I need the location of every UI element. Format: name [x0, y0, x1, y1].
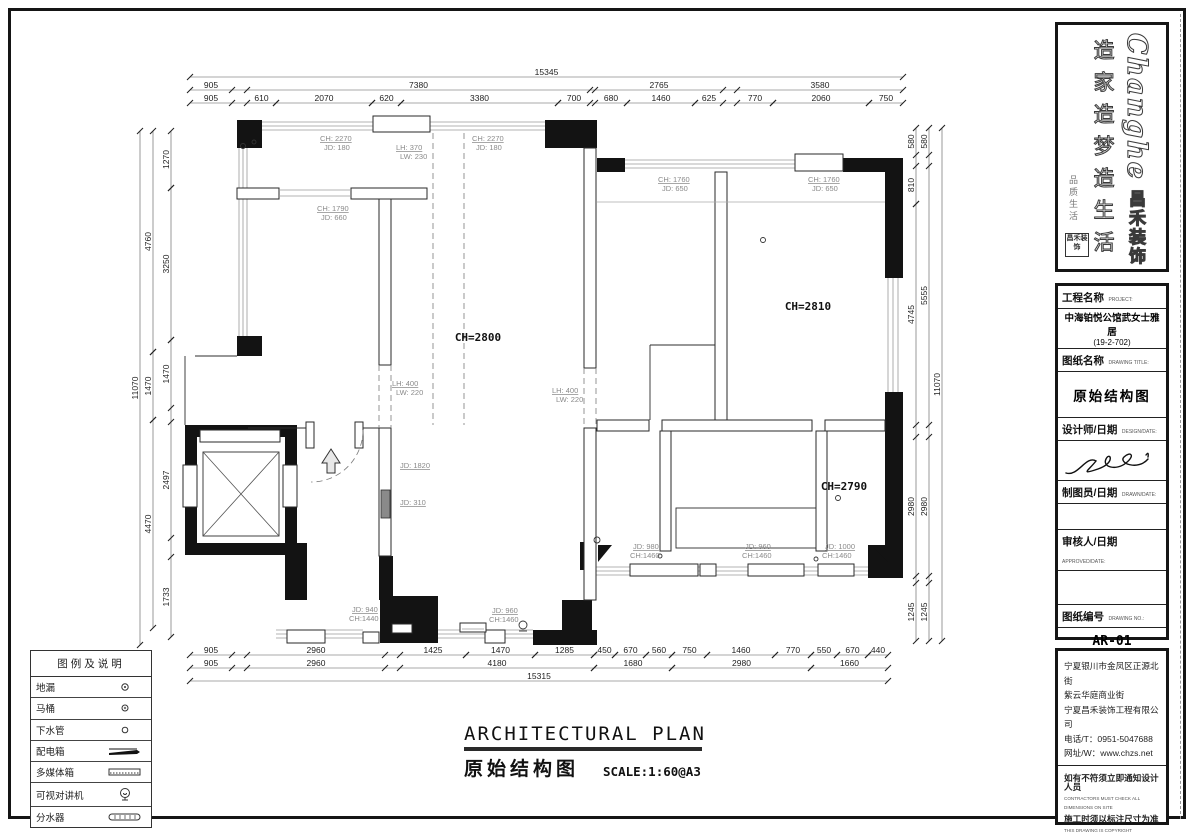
dim-top-total: 15345	[187, 67, 906, 80]
legend-row-toilet: 马桶	[31, 698, 151, 719]
svg-text:580: 580	[906, 134, 916, 148]
svg-text:770: 770	[786, 645, 800, 655]
intercom-icon	[519, 621, 527, 629]
note-1-en: CONTRACTORS MUST CHECK ALL DIMENSIONS ON…	[1064, 794, 1160, 812]
svg-text:610: 610	[254, 93, 268, 103]
svg-text:2980: 2980	[906, 497, 916, 516]
dim-bottom-groups: 90529604180168029801660	[187, 658, 891, 671]
svg-text:15315: 15315	[527, 671, 551, 681]
drafter-label: 制图员/日期	[1062, 487, 1117, 499]
svg-text:905: 905	[204, 645, 218, 655]
svg-text:JD: 980CH:1460: JD: 980CH:1460	[630, 542, 660, 560]
svg-text:2765: 2765	[650, 80, 669, 90]
svg-text:2060: 2060	[812, 93, 831, 103]
svg-text:7380: 7380	[409, 80, 428, 90]
drawing-no-label: 图纸编号	[1062, 611, 1104, 623]
svg-text:1285: 1285	[555, 645, 574, 655]
floor-plan-svg: 15345 905738027653580 905610207062033807…	[0, 0, 1200, 833]
svg-text:JD: 960CH:1460: JD: 960CH:1460	[489, 606, 519, 624]
dim-left-total: 11070	[130, 128, 143, 648]
drawing-name-value: 原始结构图	[1073, 385, 1151, 405]
legend-row-intercom: 可视对讲机	[31, 783, 151, 806]
svg-text:770: 770	[748, 93, 762, 103]
svg-text:1245: 1245	[906, 602, 916, 621]
drafter-space	[1058, 504, 1166, 530]
window-lines	[239, 122, 898, 638]
svg-text:LH: 370LW: 230: LH: 370LW: 230	[396, 143, 427, 161]
svg-text:670: 670	[623, 645, 637, 655]
legend-row-floor-drain: 地漏	[31, 677, 151, 698]
brand-name-cn: 昌禾装饰	[1123, 190, 1148, 266]
project-value: 中海铂悦公馆武女士雅居	[1062, 310, 1162, 338]
drawing-name-label: 图纸名称	[1062, 355, 1104, 367]
svg-text:2980: 2980	[732, 658, 751, 668]
dim-bottom-detail: 9052960142514701285450670560750146077055…	[187, 645, 891, 658]
power-box-icon	[392, 624, 412, 633]
svg-text:4470: 4470	[143, 514, 153, 533]
drawing-title-en: ARCHITECTURAL PLAN	[464, 723, 706, 745]
note-2-cn: 施工时须以标注尺寸为准	[1064, 815, 1160, 824]
drawing-title-block: ARCHITECTURAL PLAN 原始结构图 SCALE:1:60@A3	[464, 723, 706, 781]
svg-text:5555: 5555	[919, 286, 929, 305]
legend-row-drain-pipe: 下水管	[31, 720, 151, 741]
drain-pipe-icon	[98, 724, 151, 736]
project-unit: (19-2-702)	[1093, 338, 1130, 347]
title-underline	[464, 747, 702, 751]
room-label-ch2810: CH=2810	[785, 300, 831, 313]
legend-row-media-box: 多媒体箱	[31, 762, 151, 783]
svg-text:15345: 15345	[535, 67, 559, 77]
svg-text:LH: 400LW: 220: LH: 400LW: 220	[552, 386, 583, 404]
intercom-icon	[98, 787, 151, 803]
svg-text:2980: 2980	[919, 497, 929, 516]
svg-text:JD: 1000CH:1460: JD: 1000CH:1460	[822, 542, 855, 560]
svg-text:3580: 3580	[811, 80, 830, 90]
legend-title: 图例及说明	[31, 651, 151, 677]
svg-text:1470: 1470	[161, 364, 171, 383]
svg-text:LH: 400LW: 220: LH: 400LW: 220	[392, 379, 423, 397]
svg-text:4760: 4760	[143, 232, 153, 251]
note-1-cn: 如有不符须立即通知设计人员	[1064, 774, 1160, 792]
svg-text:1470: 1470	[143, 376, 153, 395]
legend-row-manifold: 分水器	[31, 807, 151, 827]
approver-label: 审核人/日期	[1062, 536, 1117, 548]
svg-text:CH: 1760JD: 650: CH: 1760JD: 650	[808, 175, 840, 193]
svg-text:3250: 3250	[161, 254, 171, 273]
svg-text:CH: 1760JD: 650: CH: 1760JD: 650	[658, 175, 690, 193]
power-box-icon	[98, 745, 151, 757]
manifold-icon	[98, 811, 151, 823]
svg-text:1470: 1470	[491, 645, 510, 655]
svg-text:905: 905	[204, 80, 218, 90]
company-phone: 电话/T：0951-5047688	[1064, 732, 1160, 747]
svg-text:1270: 1270	[161, 150, 171, 169]
svg-text:1425: 1425	[424, 645, 443, 655]
dim-top-detail: 9056102070620338070068014606257702060750	[187, 93, 906, 106]
svg-text:4745: 4745	[906, 305, 916, 324]
dim-top-groups: 905738027653580	[187, 80, 906, 93]
company-block: 宁夏银川市金凤区正源北街 紫云华庭商业街 宁夏昌禾装饰工程有限公司 电话/T：0…	[1055, 648, 1169, 825]
partition-walls	[237, 116, 885, 643]
svg-text:11070: 11070	[932, 373, 942, 396]
drawing-no-value: AR-01	[1092, 634, 1131, 649]
designer-label: 设计师/日期	[1062, 424, 1117, 436]
svg-text:JD: 960CH:1460: JD: 960CH:1460	[742, 542, 772, 560]
company-address-1: 宁夏银川市金凤区正源北街	[1064, 659, 1160, 688]
svg-text:750: 750	[682, 645, 696, 655]
company-web: 网址/W：www.chzs.net	[1064, 746, 1160, 761]
project-label: 工程名称	[1062, 292, 1104, 304]
brand-seal: 昌禾装饰	[1065, 233, 1089, 257]
svg-text:1660: 1660	[840, 658, 859, 668]
svg-text:JD: 940CH:1440: JD: 940CH:1440	[349, 605, 379, 623]
svg-text:2960: 2960	[307, 645, 326, 655]
svg-text:4180: 4180	[488, 658, 507, 668]
svg-text:CH: 1790JD: 660: CH: 1790JD: 660	[317, 204, 349, 222]
svg-text:CH: 2270JD: 180: CH: 2270JD: 180	[472, 134, 504, 152]
dim-left-groups: 476014704470	[143, 128, 156, 631]
svg-text:1733: 1733	[161, 587, 171, 606]
brand-logo: Changhe	[1121, 33, 1152, 181]
svg-text:1460: 1460	[652, 93, 671, 103]
svg-text:905: 905	[204, 658, 218, 668]
brand-tagline: 品质生活	[1066, 175, 1079, 223]
svg-text:2960: 2960	[307, 658, 326, 668]
svg-text:JD: 1820: JD: 1820	[400, 461, 430, 470]
svg-text:JD: 310: JD: 310	[400, 498, 426, 507]
legend-row-power-box: 配电箱	[31, 741, 151, 762]
svg-text:620: 620	[379, 93, 393, 103]
svg-text:905: 905	[204, 93, 218, 103]
drawing-scale-note: SCALE:1:60@A3	[603, 764, 701, 779]
toilet-icon	[98, 702, 151, 714]
drawing-sheet: 15345 905738027653580 905610207062033807…	[0, 0, 1200, 833]
logo-box: Changhe 昌禾装饰 造家造梦造生活 品质生活 昌禾装饰	[1055, 22, 1169, 272]
company-address-2: 紫云华庭商业街	[1064, 688, 1160, 703]
svg-text:810: 810	[906, 178, 916, 192]
svg-text:680: 680	[604, 93, 618, 103]
media-box-icon	[98, 766, 151, 778]
svg-text:1680: 1680	[624, 658, 643, 668]
svg-text:550: 550	[817, 645, 831, 655]
svg-text:11070: 11070	[130, 376, 140, 399]
svg-text:440: 440	[871, 645, 885, 655]
svg-text:560: 560	[652, 645, 666, 655]
dim-right-detail: 580810474529801245	[906, 125, 919, 644]
svg-text:700: 700	[567, 93, 581, 103]
title-block: 工程名称 PROJECT: 中海铂悦公馆武女士雅居 (19-2-702) 图纸名…	[1055, 283, 1169, 640]
dim-right-groups: 580555529801245	[919, 125, 932, 644]
svg-text:580: 580	[919, 134, 929, 148]
room-label-ch2790: CH=2790	[821, 480, 867, 493]
svg-text:1460: 1460	[732, 645, 751, 655]
note-2-en: THIS DRAWING IS COPYRIGHT	[1064, 826, 1160, 833]
beam-dashed-lines	[311, 133, 596, 482]
dim-right-total: 11070	[932, 125, 945, 644]
designer-signature	[1058, 441, 1166, 481]
floor-drain-icon	[98, 681, 151, 693]
elevator-shaft	[183, 430, 297, 536]
svg-text:2070: 2070	[315, 93, 334, 103]
room-label-ch2800: CH=2800	[455, 331, 501, 344]
approver-space	[1058, 571, 1166, 605]
svg-text:625: 625	[702, 93, 716, 103]
brand-slogan: 造家造梦造生活	[1088, 39, 1118, 264]
svg-text:670: 670	[845, 645, 859, 655]
drawing-title-cn: 原始结构图	[464, 754, 579, 781]
entry-arrow-icon	[322, 449, 340, 473]
svg-text:750: 750	[879, 93, 893, 103]
dim-left-detail: 12703250147024971733	[161, 128, 174, 640]
svg-text:CH: 2270JD: 180: CH: 2270JD: 180	[320, 134, 352, 152]
svg-text:1245: 1245	[919, 602, 929, 621]
legend-table: 图例及说明 地漏 马桶 下水管 配电箱 多媒体箱 可视对讲机 分水器	[30, 650, 152, 828]
svg-text:3380: 3380	[470, 93, 489, 103]
dim-bottom-total: 15315	[187, 671, 891, 684]
svg-text:2497: 2497	[161, 470, 171, 489]
media-box-icon	[460, 623, 486, 632]
svg-text:450: 450	[597, 645, 611, 655]
company-name: 宁夏昌禾装饰工程有限公司	[1064, 703, 1160, 732]
